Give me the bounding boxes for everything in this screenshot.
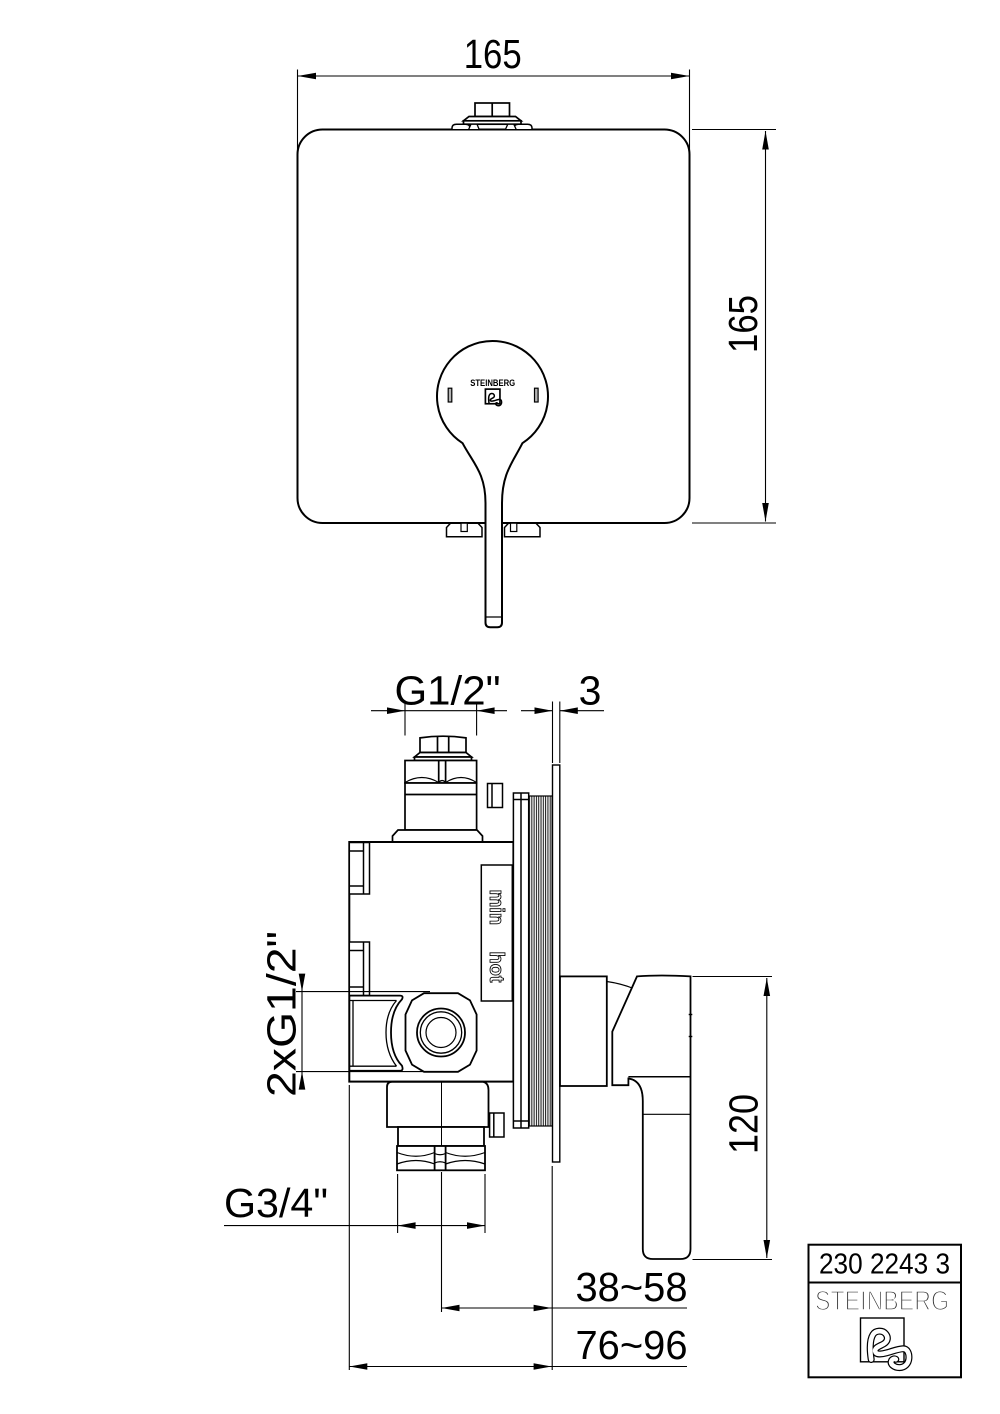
svg-text:STEINBERG: STEINBERG <box>815 1285 949 1316</box>
svg-text:165: 165 <box>720 295 766 353</box>
svg-text:230 2243 3: 230 2243 3 <box>819 1249 950 1281</box>
svg-text:G3/4": G3/4" <box>224 1180 328 1226</box>
svg-text:G1/2": G1/2" <box>395 668 501 714</box>
svg-text:hot: hot <box>485 951 507 982</box>
svg-text:120: 120 <box>721 1094 767 1154</box>
svg-text:38~58: 38~58 <box>576 1264 688 1310</box>
svg-text:STEINBERG: STEINBERG <box>470 378 515 388</box>
svg-text:76~96: 76~96 <box>576 1322 688 1368</box>
svg-text:3: 3 <box>579 668 602 714</box>
svg-text:min: min <box>485 890 507 926</box>
svg-text:165: 165 <box>464 31 522 77</box>
